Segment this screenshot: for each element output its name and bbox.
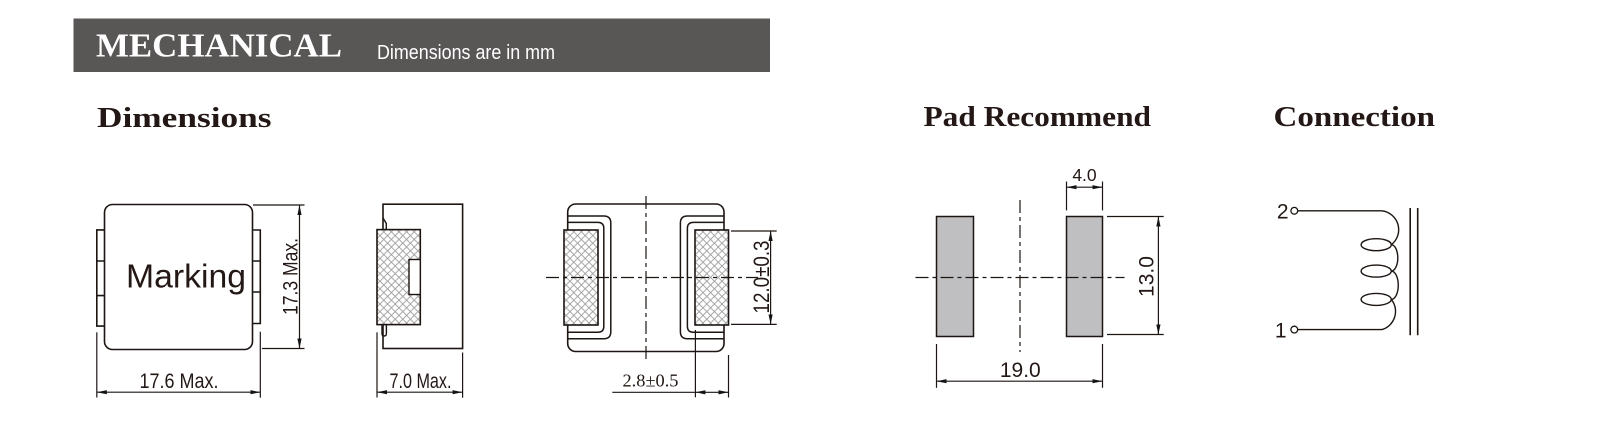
svg-text:17.6 Max.: 17.6 Max. <box>140 369 219 393</box>
svg-text:2: 2 <box>1277 201 1289 224</box>
svg-text:Pad Recommend: Pad Recommend <box>924 102 1152 133</box>
svg-text:Marking: Marking <box>126 258 246 295</box>
svg-text:1: 1 <box>1275 320 1287 343</box>
svg-text:12.0±0.3: 12.0±0.3 <box>749 241 774 314</box>
svg-text:7.0 Max.: 7.0 Max. <box>390 370 452 393</box>
svg-text:17.3 Max.: 17.3 Max. <box>279 238 303 315</box>
svg-text:Connection: Connection <box>1274 102 1436 133</box>
svg-text:4.0: 4.0 <box>1072 165 1097 185</box>
svg-text:19.0: 19.0 <box>1000 359 1041 382</box>
svg-text:MECHANICAL: MECHANICAL <box>96 28 342 65</box>
svg-text:Dimensions: Dimensions <box>97 103 272 134</box>
svg-text:Dimensions are in mm: Dimensions are in mm <box>377 42 555 64</box>
svg-text:13.0: 13.0 <box>1136 256 1159 297</box>
svg-text:2.8±0.5: 2.8±0.5 <box>623 370 679 390</box>
